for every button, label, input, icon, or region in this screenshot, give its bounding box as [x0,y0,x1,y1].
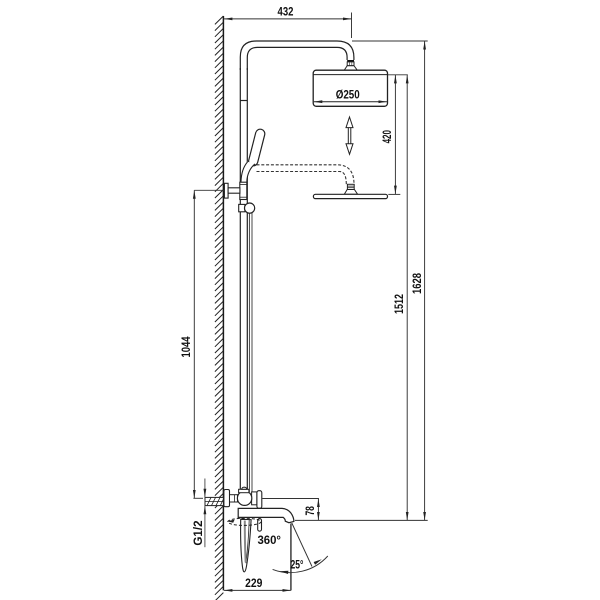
svg-text:1628: 1628 [410,273,424,294]
svg-text:Ø250: Ø250 [336,88,360,102]
svg-text:1512: 1512 [392,294,406,314]
svg-text:360°: 360° [257,533,281,547]
svg-text:432: 432 [278,5,294,19]
svg-text:G1/2: G1/2 [191,520,205,546]
svg-text:229: 229 [245,576,263,590]
svg-text:25°: 25° [291,557,304,571]
svg-text:1044: 1044 [179,336,193,357]
svg-text:78: 78 [303,506,317,516]
svg-text:420: 420 [380,130,394,144]
